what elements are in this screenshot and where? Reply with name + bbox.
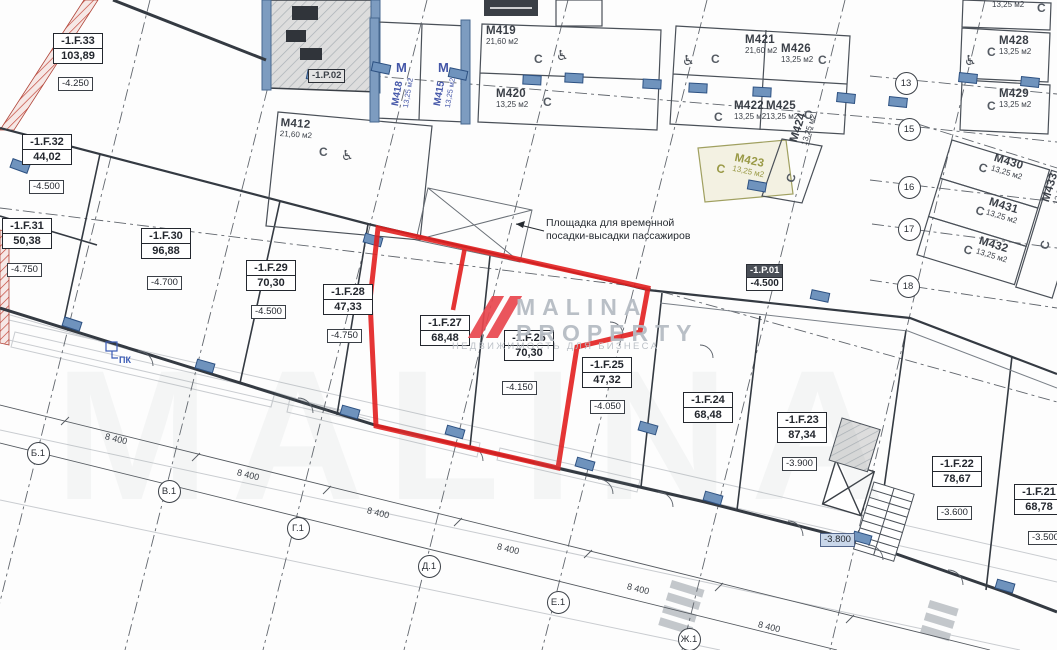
unit-elevation: -4.500 [251, 305, 286, 319]
tech-room-elevation: -4.500 [746, 278, 783, 291]
unit-id: -1.F.29 [246, 260, 296, 276]
parking-stall-label-rotated: М41513,25 м2 [432, 75, 457, 108]
storage-mark: С [783, 172, 799, 185]
parking-stall-label: М43313,25 м2 [1040, 169, 1057, 206]
storage-mark: С [711, 52, 720, 66]
unit-area: 68,48 [683, 408, 733, 423]
parking-type-mark: М [438, 60, 449, 75]
parking-id: М425 [766, 100, 798, 112]
unit-elevation: -3.900 [782, 457, 817, 471]
watermark-tagline: НЕДВИЖИМОСТЬ ДЛЯ БИЗНЕСА [452, 341, 659, 352]
parking-id: М429 [999, 88, 1031, 100]
accessible-parking-icon: ♿ [556, 48, 569, 64]
unit-label: -1.F.2387,34 [777, 412, 827, 443]
accessible-parking-icon: ♿ [341, 148, 354, 164]
grid-axis-bubble: В.1 [158, 480, 181, 503]
unit-area: 70,30 [246, 276, 296, 291]
grid-axis-bubble: Б.1 [27, 442, 50, 465]
storage-mark: С [715, 161, 726, 176]
unit-id: -1.F.25 [582, 357, 632, 373]
annotation-line1: Площадка для временной [546, 217, 696, 230]
dimension-label: 8 400 [626, 581, 650, 596]
unit-label: -1.F.2970,30 [246, 260, 296, 291]
grid-axis-bubble: 18 [897, 275, 920, 298]
parking-stall-label: М43213,25 м2 [975, 235, 1012, 264]
storage-mark: С [714, 110, 723, 124]
parking-id: М419 [486, 25, 518, 37]
grid-axis-bubble: Е.1 [547, 591, 570, 614]
parking-stall-label: М42513,25 м2 [766, 100, 798, 121]
tech-room-label: -1.P.02 [308, 69, 345, 83]
dimension-label: 8 400 [104, 431, 128, 446]
unit-area: 47,33 [323, 300, 373, 315]
parking-stall-label: М42613,25 м2 [781, 43, 813, 64]
unit-area: 103,89 [53, 49, 103, 64]
accessible-parking-icon: ♿ [964, 53, 977, 69]
elevation-label: -3.800 [820, 533, 855, 547]
parking-area: 13,25 м2 [992, 0, 1024, 9]
storage-mark: С [987, 45, 996, 59]
unit-label: -1.F.2278,67 [932, 456, 982, 487]
parking-area: 21,60 м2 [745, 46, 777, 55]
unit-id: -1.F.22 [932, 456, 982, 472]
unit-area: 87,34 [777, 428, 827, 443]
parking-area: 13,25 м2 [999, 47, 1031, 56]
storage-mark: С [543, 95, 552, 109]
storage-mark: С [319, 145, 328, 159]
parking-id: М421 [745, 34, 777, 46]
parking-stall-label: М42913,25 м2 [999, 88, 1031, 109]
parking-stall-label: М41921,60 м2 [486, 25, 518, 46]
grid-axis-bubble: 13 [895, 72, 918, 95]
tech-room-label: -1.P.01-4.500 [746, 264, 783, 291]
grid-axis-bubble: Ж.1 [678, 628, 701, 650]
unit-label: -1.F.3096,88 [141, 228, 191, 259]
parking-area: 13,25 м2 [734, 112, 766, 121]
unit-id: -1.F.28 [323, 284, 373, 300]
unit-area: 96,88 [141, 244, 191, 259]
parking-stall-label: М42213,25 м2 [734, 100, 766, 121]
dimension-label: 8 400 [757, 619, 781, 634]
parking-area: 13,25 м2 [999, 100, 1031, 109]
storage-mark: С [1037, 1, 1046, 15]
parking-stall-label: М42313,25 м2 [732, 152, 768, 179]
fire-cabinet-label: ПК [119, 355, 131, 365]
unit-label: -1.F.2847,33 [323, 284, 373, 315]
unit-id: -1.F.32 [22, 134, 72, 150]
unit-id: -1.F.23 [777, 412, 827, 428]
parking-id: М428 [999, 35, 1031, 47]
parking-stall-label: М42013,25 м2 [496, 88, 528, 109]
grid-axis-bubble: 16 [898, 176, 921, 199]
parking-id: М420 [496, 88, 528, 100]
unit-elevation: -3.600 [937, 506, 972, 520]
unit-id: -1.F.33 [53, 33, 103, 49]
unit-id: -1.F.31 [2, 218, 52, 234]
tech-room-id: -1.P.01 [746, 264, 783, 278]
parking-stall-label: М43013,25 м2 [990, 152, 1027, 181]
parking-stall-label-rotated: М41813,25 м2 [390, 75, 415, 108]
unit-id: -1.F.24 [683, 392, 733, 408]
grid-axis-bubble: 15 [898, 118, 921, 141]
unit-elevation: -4.050 [590, 400, 625, 414]
tech-room-id: -1.P.02 [308, 69, 345, 83]
unit-label: -1.F.33103,89 [53, 33, 103, 64]
unit-area: 44,02 [22, 150, 72, 165]
watermark-brand-line1: MALINA [516, 294, 647, 321]
dropoff-annotation: Площадка для временной посадки-высадки п… [546, 217, 696, 243]
unit-elevation: -4.250 [58, 77, 93, 91]
grid-axis-bubble: Г.1 [287, 517, 310, 540]
annotation-line2: посадки-высадки пассажиров [546, 230, 696, 243]
unit-id: -1.F.30 [141, 228, 191, 244]
unit-area: 68,78 [1014, 500, 1057, 515]
grid-axis-bubble: Д.1 [418, 555, 441, 578]
accessible-parking-icon: ♿ [682, 53, 695, 69]
parking-area: 13,25 м2 [496, 100, 528, 109]
storage-mark: С [818, 53, 827, 67]
unit-area: 50,38 [2, 234, 52, 249]
dimension-label: 8 400 [496, 541, 520, 556]
storage-mark: С [534, 52, 543, 66]
unit-id: -1.F.21 [1014, 484, 1057, 500]
parking-id: М422 [734, 100, 766, 112]
parking-stall-label: М42121,60 м2 [745, 34, 777, 55]
unit-label: -1.F.2468,48 [683, 392, 733, 423]
unit-elevation: -4.750 [327, 329, 362, 343]
parking-area: 21,60 м2 [486, 37, 518, 46]
storage-mark: С [987, 99, 996, 113]
parking-stall-label: М41221,60 м2 [280, 117, 314, 140]
unit-elevation: -3.500 [1028, 531, 1057, 545]
floorplan-viewer: MALINA Площадка для временной посадки-вы… [0, 0, 1057, 650]
parking-area: 13,25 м2 [781, 55, 813, 64]
unit-label: -1.F.3150,38 [2, 218, 52, 249]
storage-mark: С [962, 242, 974, 258]
parking-stall-label: 13,25 м2 [992, 0, 1024, 9]
unit-elevation: -4.500 [29, 180, 64, 194]
unit-label: -1.F.2547,32 [582, 357, 632, 388]
unit-area: 47,32 [582, 373, 632, 388]
unit-area: 78,67 [932, 472, 982, 487]
storage-mark: С [1037, 239, 1053, 251]
unit-label: -1.F.2168,78 [1014, 484, 1057, 515]
parking-type-mark: М [396, 60, 407, 75]
unit-elevation: -4.750 [7, 263, 42, 277]
grid-axis-bubble: 17 [898, 218, 921, 241]
storage-mark: С [977, 160, 989, 176]
unit-label: -1.F.3244,02 [22, 134, 72, 165]
dimension-label: 8 400 [236, 467, 260, 482]
storage-mark: С [974, 203, 986, 219]
unit-elevation: -4.150 [502, 381, 537, 395]
unit-id: -1.F.27 [420, 315, 470, 331]
parking-area: 21,60 м2 [280, 129, 313, 140]
dimension-label: 8 400 [366, 505, 390, 520]
parking-stall-label: М43113,25 м2 [985, 196, 1022, 225]
parking-id: М426 [781, 43, 813, 55]
unit-elevation: -4.700 [147, 276, 182, 290]
parking-stall-label: М42813,25 м2 [999, 35, 1031, 56]
